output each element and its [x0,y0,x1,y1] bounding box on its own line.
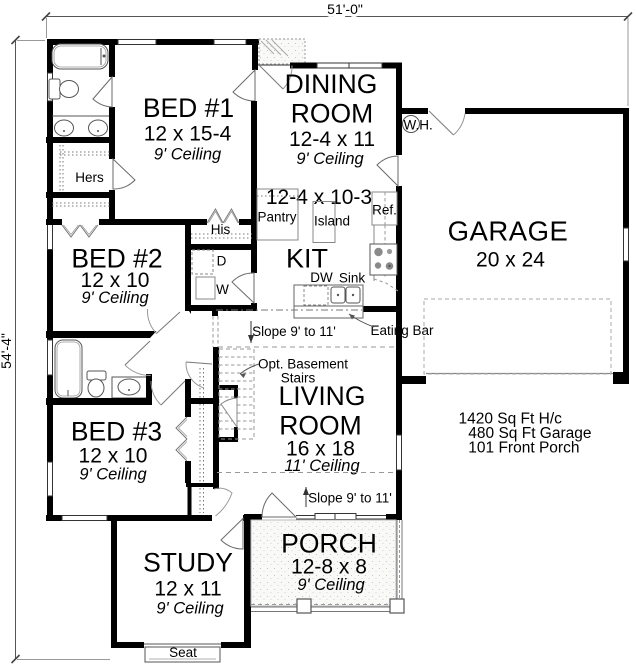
svg-text:9' Ceiling: 9' Ceiling [297,576,365,594]
svg-text:Opt. Basement: Opt. Basement [258,357,348,372]
svg-text:BED #1: BED #1 [143,93,234,123]
svg-text:ROOM: ROOM [291,99,373,129]
svg-text:51'-0": 51'-0" [327,1,363,17]
svg-text:9' Ceiling: 9' Ceiling [156,600,224,618]
svg-text:9' Ceiling: 9' Ceiling [154,146,222,164]
svg-text:GARAGE: GARAGE [448,216,569,247]
svg-text:Island: Island [314,214,350,229]
svg-text:BED #3: BED #3 [71,417,162,447]
svg-text:12 x 15-4: 12 x 15-4 [144,123,232,146]
svg-text:Sink: Sink [339,271,366,286]
svg-text:Ref.: Ref. [372,203,397,218]
svg-text:11' Ceiling: 11' Ceiling [284,457,360,475]
svg-text:20 x 24: 20 x 24 [476,249,545,272]
svg-text:Slope 9' to 11': Slope 9' to 11' [252,324,336,339]
svg-text:101 Front Porch: 101 Front Porch [468,439,579,456]
svg-text:LIVING: LIVING [279,381,366,411]
svg-text:DW: DW [310,270,333,285]
svg-text:54'-4": 54'-4" [0,333,14,369]
svg-text:PORCH: PORCH [281,529,377,559]
svg-text:9' Ceiling: 9' Ceiling [79,466,147,484]
svg-text:W: W [216,282,229,297]
svg-text:12 x 10: 12 x 10 [79,445,148,468]
svg-text:KIT: KIT [286,244,328,274]
svg-text:ROOM: ROOM [279,411,361,441]
svg-text:DINING: DINING [285,69,378,99]
svg-text:Pantry: Pantry [257,210,296,225]
svg-text:D: D [217,254,227,269]
svg-text:9' Ceiling: 9' Ceiling [81,289,149,307]
svg-text:Slope 9' to 11': Slope 9' to 11' [308,491,392,506]
svg-text:Seat: Seat [169,645,197,660]
svg-text:9' Ceiling: 9' Ceiling [296,150,364,168]
svg-text:W.H.: W.H. [404,118,433,133]
svg-text:Hers: Hers [75,170,104,185]
svg-text:His: His [211,222,231,237]
svg-text:12-4 x 11: 12-4 x 11 [289,128,375,151]
svg-text:12 x 11: 12 x 11 [154,578,221,601]
svg-text:STUDY: STUDY [143,548,233,578]
